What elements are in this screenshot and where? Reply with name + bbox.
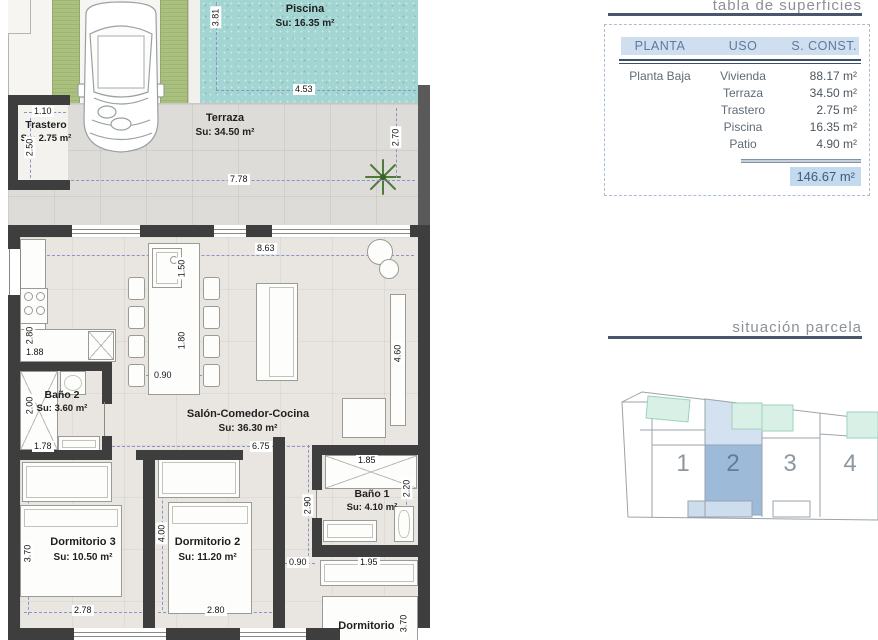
chair [128, 277, 145, 300]
col-header-uso: USO [699, 39, 787, 53]
burner [24, 292, 33, 301]
cell-value: 16.35 m² [787, 120, 859, 134]
house-wall [246, 225, 272, 237]
house-wall [8, 225, 72, 237]
hall-wall [273, 437, 285, 628]
dimension-label: 3.70 [398, 613, 409, 635]
surfaces-table-header: PLANTA USO S. CONST. [621, 37, 859, 55]
pillow [24, 509, 118, 527]
dimension-label: 1.95 [358, 557, 380, 568]
bath1-wall [320, 445, 418, 455]
surfaces-section-title: tabla de superficies [604, 0, 862, 14]
table-row: Patio 4.90 m² [621, 135, 859, 152]
cell-planta: Planta Baja [621, 69, 699, 83]
burner [36, 306, 45, 315]
house-wall [166, 628, 240, 640]
sofa [256, 283, 298, 381]
pillow [172, 506, 248, 524]
cell-uso: Terraza [699, 86, 787, 100]
house-wall [418, 225, 430, 628]
dimension-label: 4.53 [293, 84, 315, 95]
room-label-dorm3: Dormitorio 3 [38, 536, 128, 548]
chair [203, 306, 220, 329]
chair [203, 335, 220, 358]
plot-number-4: 4 [843, 450, 856, 477]
chair [203, 364, 220, 387]
surfaces-table: PLANTA USO S. CONST. Planta Baja Viviend… [604, 24, 870, 196]
dimension-label: 2.78 [72, 605, 94, 616]
house-wall [8, 295, 20, 628]
door-leaf [316, 490, 317, 518]
table-row: Piscina 16.35 m² [621, 118, 859, 135]
dimension-line [36, 180, 415, 181]
dimension-label: 8.63 [255, 243, 277, 254]
dimension-line [22, 255, 414, 256]
bedroom-wall [143, 450, 155, 628]
parcela-section-rule [608, 336, 862, 339]
dimension-label: 2.70 [390, 127, 401, 149]
bath2-wall [20, 362, 112, 371]
door-leaf [104, 402, 105, 436]
storage-wall [8, 180, 70, 190]
chair [203, 277, 220, 300]
bedroom-wall [155, 450, 243, 460]
parcela-diagram: 1 2 3 4 [612, 386, 878, 526]
dimension-label: 2.80 [205, 605, 227, 616]
dimension-label: 7.78 [228, 174, 250, 185]
chair [128, 364, 145, 387]
burner [36, 292, 45, 301]
dimension-label: 4.60 [392, 343, 403, 365]
dimension-label: 1.10 [32, 106, 54, 117]
room-label-salon: Salón-Comedor-Cocina [158, 408, 338, 420]
wardrobe [22, 462, 112, 502]
house-wall [140, 225, 214, 237]
window [240, 632, 306, 637]
room-label-piscina: Piscina [245, 3, 365, 15]
cell-value: 34.50 m² [787, 86, 859, 100]
plot-pool [646, 396, 690, 422]
dimension-label: 2.50 [24, 137, 35, 159]
window [214, 229, 246, 234]
dimension-label: 2.20 [401, 478, 412, 500]
plot-number-1: 1 [676, 450, 689, 477]
room-label-dorm2: Dormitorio 2 [160, 536, 255, 548]
boundary-wall [418, 85, 430, 225]
washbasin [323, 520, 377, 542]
table-row: Trastero 2.75 m² [621, 101, 859, 118]
header-rule [619, 59, 861, 64]
plant-pot [379, 259, 399, 279]
col-header-planta: PLANTA [621, 39, 699, 53]
room-su-piscina: Su: 16.35 m² [245, 18, 365, 29]
cell-value: 88.17 m² [787, 69, 859, 83]
parcela-section-title: situación parcela [604, 319, 862, 336]
plot-pool [847, 412, 878, 438]
total-rule [741, 159, 861, 163]
house-wall [8, 237, 20, 249]
table-row: Terraza 34.50 m² [621, 84, 859, 101]
plot-number-2: 2 [726, 450, 739, 477]
dimension-label: 3.81 [210, 7, 221, 29]
room-label-bano2: Baño 2 [32, 389, 92, 401]
plot-pool [762, 405, 793, 431]
dimension-label: 1.50 [176, 258, 187, 280]
dimension-label: 3.70 [22, 543, 33, 565]
burner [24, 306, 33, 315]
car-icon [76, 0, 166, 162]
cell-uso: Piscina [699, 120, 787, 134]
room-su-dorm2: Su: 11.20 m² [160, 552, 255, 563]
cell-value: 2.75 m² [787, 103, 859, 117]
plot2-highlight-tab [688, 501, 752, 517]
cell-uso: Patio [699, 137, 787, 151]
plot-number-3: 3 [783, 450, 796, 477]
armchair [342, 398, 386, 438]
room-su-terraza: Su: 34.50 m² [165, 127, 285, 138]
room-su-salon: Su: 36.30 m² [158, 423, 338, 434]
dimension-label: 2.90 [302, 495, 313, 517]
wardrobe [158, 458, 240, 498]
dimension-label: 0.90 [152, 370, 174, 381]
dimension-label: 1.80 [176, 330, 187, 352]
bath1-wall [312, 545, 418, 557]
room-label-bano1: Baño 1 [340, 488, 404, 500]
chair [128, 335, 145, 358]
patio-step-line [30, 0, 31, 34]
room-su-trastero: Su: 2.75 m² [10, 133, 82, 144]
dimension-label: 4.00 [156, 523, 167, 545]
total-surface: 146.67 m² [790, 167, 861, 186]
chair [128, 306, 145, 329]
room-su-dorm3: Su: 10.50 m² [38, 552, 128, 563]
dimension-line [216, 90, 416, 91]
surfaces-section-rule [608, 13, 862, 16]
plot-pool [732, 403, 762, 429]
dimension-label: 0.90 [287, 557, 309, 568]
dimension-label: 1.88 [24, 347, 46, 358]
cell-uso: Vivienda [699, 69, 787, 83]
window [72, 229, 140, 234]
house-wall [8, 628, 74, 640]
floorplan-page: Piscina Su: 16.35 m² Terraza Su: 34.50 m… [0, 0, 878, 640]
room-su-bano2: Su: 3.60 m² [26, 403, 98, 414]
kitchen-sink [88, 331, 114, 360]
window [74, 632, 166, 637]
room-label-trastero: Trastero [14, 119, 78, 131]
cell-value: 4.90 m² [787, 137, 859, 151]
room-label-terraza: Terraza [165, 112, 285, 124]
dimension-label: 1.85 [356, 455, 378, 466]
dimension-label: 1.78 [32, 441, 54, 452]
bath1-wall [312, 445, 322, 490]
room-su-bano1: Su: 4.10 m² [336, 502, 408, 513]
window [9, 249, 21, 295]
pool-deck [188, 0, 200, 106]
dimension-label: 2.80 [24, 325, 35, 347]
col-header-sconst: S. CONST. [787, 39, 859, 53]
patio-step-line [8, 33, 31, 34]
bath2-wall [102, 362, 112, 404]
dimension-label: 6.75 [250, 441, 272, 452]
table-row: Planta Baja Vivienda 88.17 m² [621, 67, 859, 84]
patio-step-line [8, 33, 9, 103]
dimension-label: 2.00 [24, 395, 35, 417]
window [272, 229, 410, 234]
cell-uso: Trastero [699, 103, 787, 117]
